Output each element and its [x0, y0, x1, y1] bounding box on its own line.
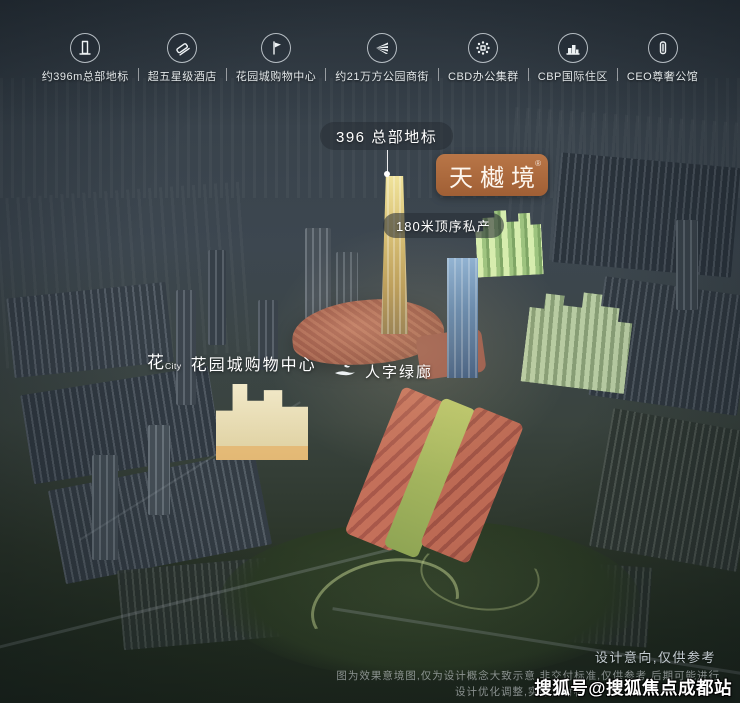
registered-trademark-icon: ® [535, 159, 541, 168]
divider [528, 68, 529, 81]
feature-label: 花园城购物中心 [236, 68, 317, 84]
hotel-icon [167, 33, 197, 63]
brand-name: 天樾境 [449, 158, 542, 193]
feature-label: CBD办公集群 [448, 68, 519, 84]
tower-icon [70, 33, 100, 63]
feature-label: 超五星级酒店 [148, 68, 217, 84]
divider [617, 68, 618, 81]
feature-item-park-street: 约21万方公园商街 [335, 33, 429, 84]
callout-anchor-dot [384, 171, 390, 177]
feature-item-residence: CBP国际住区 [538, 33, 608, 84]
feature-item-mall: 花园城购物中心 [236, 33, 317, 84]
feature-item-cbd: CBD办公集群 [448, 33, 519, 84]
cbd-cluster-icon [468, 33, 498, 63]
green-corridor-callout: 人字绿廊 [333, 361, 433, 382]
huacity-logo-cn: 花 [147, 355, 164, 372]
divider [438, 68, 439, 81]
vignette-overlay [0, 0, 740, 703]
park-street-icon [367, 33, 397, 63]
aerial-masterplan-rendering: 约396m总部地标 超五星级酒店 花园城购物中心 约21万方公园商街 [0, 0, 740, 703]
brand-logo-box: 天樾境 ® [436, 154, 548, 196]
design-intent-note: 设计意向,仅供参考 [595, 647, 716, 666]
feature-item-mansion: CEO尊奢公馆 [627, 33, 698, 84]
feature-label: 约21万方公园商街 [335, 68, 429, 84]
mansion-icon [648, 33, 678, 63]
divider [138, 68, 139, 81]
residence-icon [558, 33, 588, 63]
divider [226, 68, 227, 81]
mall-icon [261, 33, 291, 63]
feature-bar: 约396m总部地标 超五星级酒店 花园城购物中心 约21万方公园商街 [0, 33, 740, 84]
feature-item-landmark: 约396m总部地标 [42, 33, 129, 84]
huacity-logo: 花 City [147, 355, 182, 372]
feature-label: CBP国际住区 [538, 68, 608, 84]
mall-callout-label: 花园城购物中心 [191, 351, 317, 375]
callout-leader-line [387, 150, 388, 172]
sohu-watermark: 搜狐号@搜狐焦点成都站 [534, 675, 732, 700]
feature-label: CEO尊奢公馆 [627, 68, 698, 84]
goose-icon [333, 362, 357, 382]
feature-label: 约396m总部地标 [42, 68, 129, 84]
feature-item-hotel: 超五星级酒店 [148, 33, 217, 84]
huacity-logo-en: City [165, 362, 182, 371]
mall-callout: 花 City 花园城购物中心 [147, 351, 317, 375]
corridor-callout-label: 人字绿廊 [365, 361, 433, 382]
landmark-callout-pill: 396 总部地标 [320, 122, 453, 150]
divider [325, 68, 326, 81]
top-private-callout-pill: 180米顶序私产 [383, 213, 504, 238]
